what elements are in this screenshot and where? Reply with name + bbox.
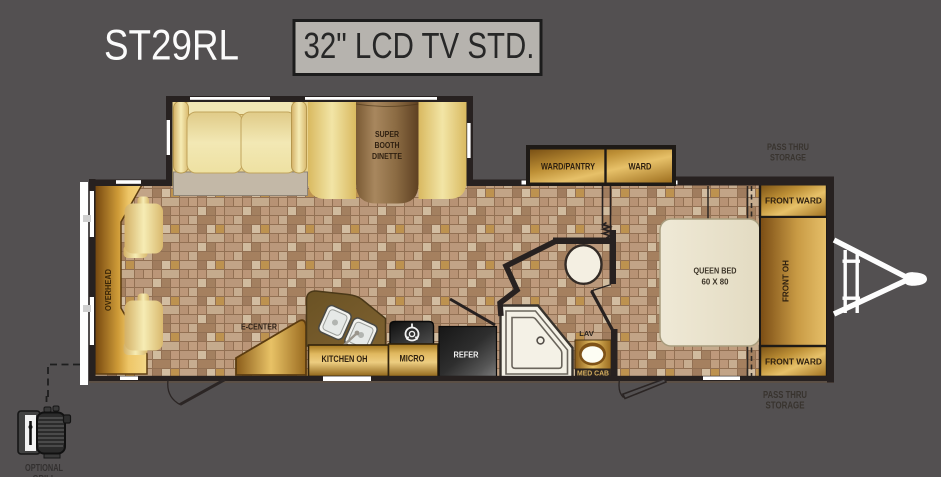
svg-text:FRONT OH: FRONT OH — [782, 260, 791, 302]
svg-text:LAV: LAV — [579, 329, 593, 338]
svg-text:60 X 80: 60 X 80 — [702, 277, 729, 287]
svg-text:PASS THRU: PASS THRU — [767, 142, 809, 153]
svg-text:FRONT WARD: FRONT WARD — [765, 358, 822, 367]
svg-text:QUEEN BED: QUEEN BED — [694, 266, 737, 276]
svg-text:KITCHEN OH: KITCHEN OH — [322, 354, 368, 364]
svg-text:STORAGE: STORAGE — [766, 401, 805, 412]
svg-text:DINETTE: DINETTE — [372, 152, 403, 161]
svg-text:WARD: WARD — [629, 162, 652, 172]
svg-text:REFER: REFER — [454, 351, 479, 360]
svg-text:OPTIONAL: OPTIONAL — [25, 463, 63, 474]
svg-text:PASS THRU: PASS THRU — [763, 390, 807, 401]
svg-text:BOOTH: BOOTH — [375, 141, 400, 150]
svg-text:32" LCD TV STD.: 32" LCD TV STD. — [304, 25, 535, 66]
svg-text:OVERHEAD: OVERHEAD — [104, 269, 113, 311]
svg-text:SUPER: SUPER — [375, 130, 399, 139]
svg-text:ST29RL: ST29RL — [104, 23, 239, 70]
svg-text:FRONT WARD: FRONT WARD — [765, 197, 822, 206]
svg-text:E-CENTER: E-CENTER — [241, 322, 277, 332]
svg-text:WARD/PANTRY: WARD/PANTRY — [541, 162, 595, 172]
svg-text:MICRO: MICRO — [400, 354, 425, 364]
svg-text:STORAGE: STORAGE — [770, 153, 806, 164]
